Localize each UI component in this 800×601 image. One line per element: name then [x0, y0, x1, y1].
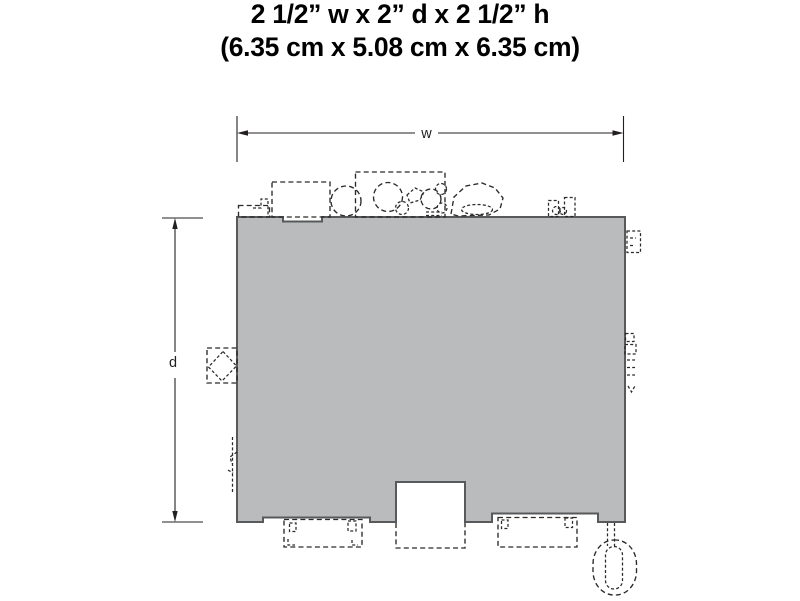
pipe-end-mark — [628, 386, 635, 392]
barrel-outline-left — [331, 186, 361, 216]
footprint-diagram: 2 1/2” w x 2” d x 2 1/2” h (6.35 cm x 5.… — [0, 0, 800, 601]
step-bracket-outline — [253, 199, 268, 216]
pipe-rung-marks — [627, 360, 635, 375]
bottom-edge-details — [284, 518, 637, 596]
dock-post-outline-d — [565, 518, 573, 528]
pipe-bracket-outline-upper — [626, 334, 635, 342]
top-edge-details — [239, 172, 576, 217]
doorway-apron-outline — [396, 523, 465, 548]
rock-pile-outline — [451, 183, 503, 216]
crate-outline-small-left — [239, 206, 270, 218]
pipe-bracket-outline-lower — [625, 345, 636, 355]
left-edge-details — [207, 348, 237, 494]
detail-box-outline-center — [356, 172, 446, 217]
right-edge-details — [625, 231, 641, 392]
depth-arrowhead-bottom — [172, 511, 177, 522]
rotated-crate-outline — [209, 352, 237, 382]
dock-corner-mark-b — [352, 540, 358, 545]
fuel-tank-core-outline — [606, 547, 623, 590]
footprint-drawing: w d — [0, 0, 800, 601]
downspout-hook-mark — [230, 452, 237, 464]
width-arrowhead-left — [237, 130, 248, 136]
width-dimension-label: w — [420, 126, 432, 142]
meter-box-marks — [630, 238, 636, 246]
width-dimension: w — [237, 116, 624, 162]
depth-arrowhead-top — [172, 218, 177, 229]
dock-post-outline-a — [290, 523, 297, 532]
meter-box-outline — [627, 231, 641, 253]
fuel-tank-outline — [593, 540, 637, 595]
depth-dimension: d — [162, 218, 203, 522]
dock-post-outline-c — [502, 520, 509, 529]
crate-outline-tall — [272, 182, 330, 217]
dock-post-outline-b — [348, 521, 356, 531]
depth-dimension-label: d — [169, 355, 177, 371]
building-footprint — [237, 217, 625, 522]
dock-corner-mark-a — [288, 539, 295, 545]
loading-dock-outline-right — [498, 518, 577, 548]
rock-base-outline — [462, 205, 493, 215]
plank-lines-outline — [426, 212, 442, 216]
width-arrowhead-right — [613, 130, 624, 136]
barrel-outline-center — [374, 183, 403, 212]
